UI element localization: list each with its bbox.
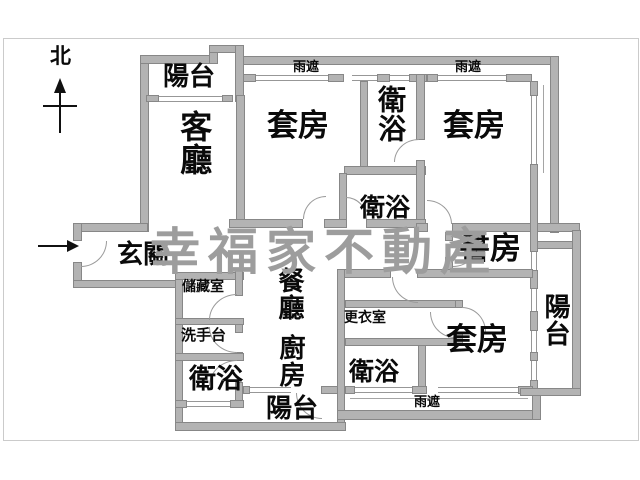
canopy-label-top-right: 雨遮 — [455, 60, 481, 74]
room-label-balcony-top: 陽台 — [163, 63, 215, 90]
window — [531, 289, 537, 311]
wall — [140, 55, 149, 232]
wall — [345, 300, 456, 308]
watermark-text: 幸福家不動產 — [150, 212, 498, 284]
wall — [345, 338, 456, 346]
wall — [175, 422, 346, 431]
entry-arrow-head-icon — [67, 240, 79, 252]
wall — [321, 386, 338, 394]
wall — [175, 400, 187, 408]
canopy-label-top-left: 雨遮 — [293, 60, 319, 74]
window — [187, 401, 230, 407]
window — [531, 96, 537, 164]
window — [531, 361, 537, 380]
wall — [243, 74, 256, 82]
wall — [337, 410, 541, 420]
wall — [532, 393, 541, 420]
window — [355, 387, 412, 393]
wall — [506, 74, 532, 82]
window — [438, 75, 506, 81]
room-label-bath-left: 衛浴 — [189, 365, 243, 393]
wall — [530, 81, 538, 96]
wall — [73, 223, 148, 232]
room-label-bath-bottom: 衛浴 — [349, 360, 399, 386]
compass-crossbar — [43, 105, 77, 107]
window — [390, 75, 409, 81]
room-label-balcony-right: 陽台 — [542, 293, 569, 347]
wall — [416, 74, 425, 140]
wall — [530, 352, 538, 361]
wall — [73, 223, 82, 241]
wall — [530, 311, 538, 331]
wall — [344, 166, 426, 175]
wall — [345, 386, 355, 394]
room-label-bath-top: 衛浴 — [375, 85, 404, 143]
wall — [146, 95, 159, 102]
window — [438, 387, 518, 393]
window — [531, 252, 537, 270]
room-label-kitchen: 廚房 — [277, 334, 304, 388]
room-label-suite-bottom-right: 套房 — [446, 324, 508, 356]
room-label-suite-top-left: 套房 — [267, 110, 329, 142]
wall — [360, 81, 368, 173]
wall — [550, 56, 559, 233]
wall — [243, 56, 559, 65]
room-label-sink: 洗手台 — [181, 329, 226, 345]
wall — [243, 386, 250, 394]
room-label-balcony-bottom: 陽台 — [266, 395, 318, 422]
wall — [377, 74, 390, 82]
compass-arrow-stem — [59, 90, 61, 133]
room-label-suite-top-right: 套房 — [443, 110, 505, 142]
window — [256, 75, 328, 81]
compass-north-label: 北 — [50, 46, 71, 68]
floorplan-canvas: { "compass": { "north_label": "北" }, "wa… — [0, 0, 640, 480]
wall — [222, 95, 233, 102]
wall — [236, 95, 245, 220]
wall — [572, 230, 581, 395]
wall — [427, 74, 438, 82]
canopy-label-bottom: 雨遮 — [414, 395, 440, 409]
wall — [412, 386, 427, 394]
wall — [337, 269, 345, 424]
wall — [530, 164, 538, 252]
room-label-dressing: 更衣室 — [344, 312, 386, 327]
wall — [328, 74, 344, 82]
wall — [230, 400, 244, 408]
canopy-line — [543, 85, 544, 173]
window — [159, 96, 222, 102]
entry-arrow-stem — [38, 245, 69, 247]
window — [531, 331, 537, 352]
room-label-living-room: 客廳 — [177, 110, 210, 176]
wall — [520, 388, 581, 396]
